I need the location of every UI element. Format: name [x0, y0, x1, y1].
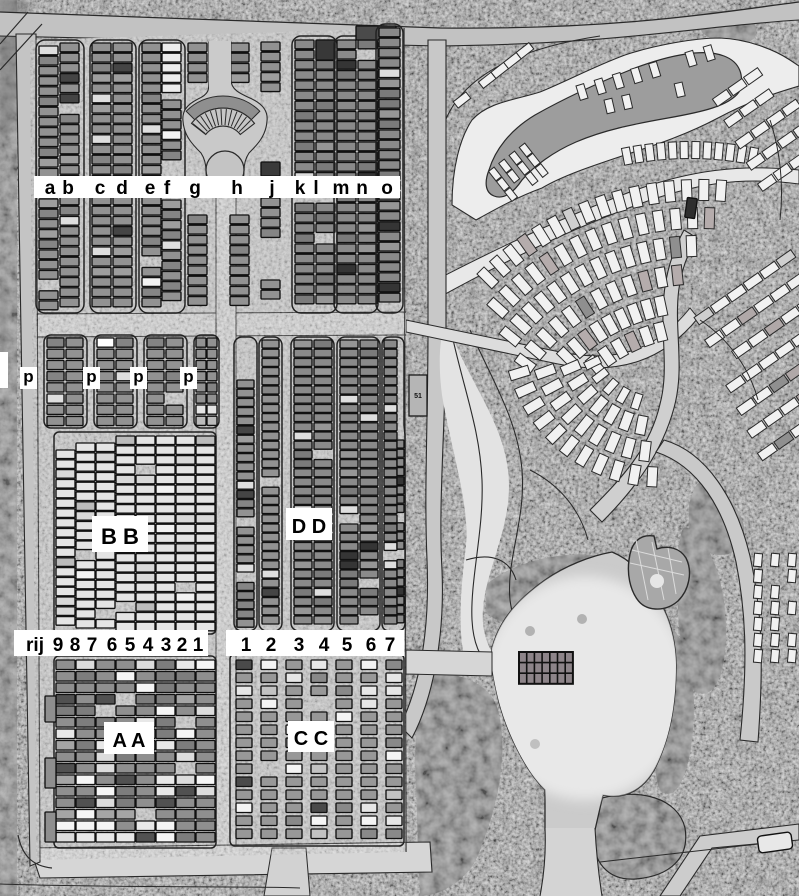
svg-text:l: l [313, 178, 318, 199]
svg-text:7: 7 [385, 635, 396, 656]
svg-text:2: 2 [266, 635, 277, 656]
svg-text:3: 3 [294, 635, 305, 656]
svg-text:c: c [95, 178, 106, 199]
svg-text:p: p [133, 367, 143, 386]
svg-text:B B: B B [101, 524, 139, 549]
svg-text:d: d [116, 178, 128, 199]
svg-text:7: 7 [87, 635, 98, 656]
svg-text:1: 1 [193, 635, 204, 656]
svg-text:e: e [145, 178, 156, 199]
svg-text:p: p [86, 367, 96, 386]
svg-text:f: f [164, 178, 171, 199]
svg-text:8: 8 [70, 635, 81, 656]
svg-text:2: 2 [177, 635, 188, 656]
svg-text:D D: D D [292, 516, 326, 538]
svg-text:4: 4 [319, 635, 330, 656]
svg-text:p: p [23, 367, 33, 386]
svg-text:4: 4 [143, 635, 154, 656]
svg-text:n: n [356, 178, 368, 199]
svg-text:1: 1 [241, 635, 252, 656]
svg-text:b: b [62, 178, 74, 199]
svg-text:g: g [189, 178, 201, 199]
svg-text:6: 6 [107, 635, 118, 656]
svg-text:C C: C C [294, 728, 328, 750]
svg-text:6: 6 [366, 635, 377, 656]
svg-text:9: 9 [53, 635, 64, 656]
svg-text:a: a [45, 178, 56, 199]
svg-text:A A: A A [113, 730, 146, 752]
svg-text:o: o [381, 178, 393, 199]
svg-text:k: k [295, 178, 306, 199]
svg-text:p: p [183, 367, 193, 386]
svg-text:m: m [333, 178, 350, 199]
svg-text:j: j [268, 178, 274, 199]
svg-text:3: 3 [161, 635, 172, 656]
svg-text:51: 51 [414, 393, 422, 400]
svg-text:5: 5 [342, 635, 353, 656]
svg-text:h: h [231, 178, 243, 199]
svg-text:5: 5 [125, 635, 136, 656]
svg-text:rij: rij [26, 635, 44, 656]
